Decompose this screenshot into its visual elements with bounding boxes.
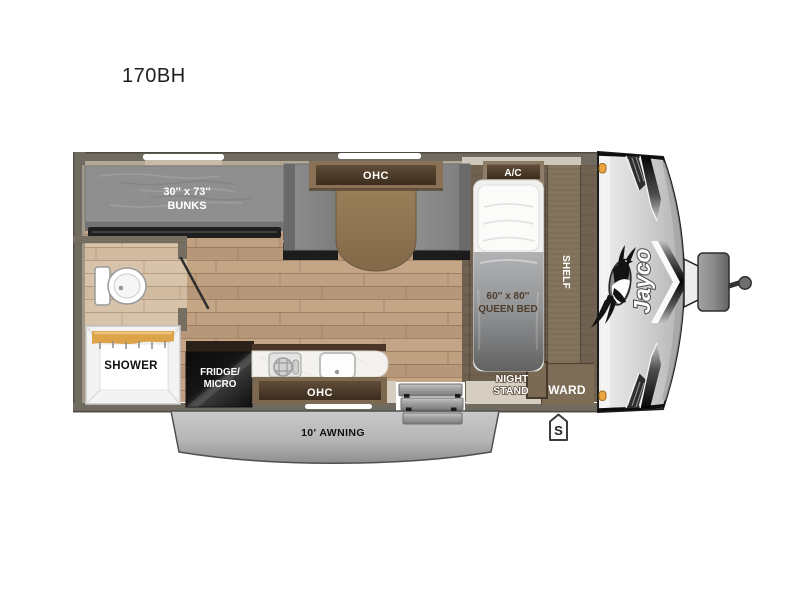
svg-text:OHC: OHC [307,387,333,399]
svg-text:Jayco: Jayco [629,248,655,313]
svg-text:MICRO: MICRO [204,379,237,390]
svg-text:STAND: STAND [493,385,529,397]
svg-text:FRIDGE/: FRIDGE/ [200,367,240,378]
svg-text:OHC: OHC [363,170,389,182]
svg-text:WARD: WARD [548,383,586,397]
svg-text:10' AWNING: 10' AWNING [301,427,365,439]
svg-text:SHELF: SHELF [560,255,571,289]
svg-text:SHOWER: SHOWER [104,360,158,372]
svg-text:30'' x 73'': 30'' x 73'' [163,186,211,198]
svg-text:S: S [554,423,563,438]
svg-text:QUEEN BED: QUEEN BED [478,304,537,315]
svg-text:A/C: A/C [504,168,521,179]
svg-text:170BH: 170BH [122,65,186,87]
svg-text:NIGHT: NIGHT [496,373,529,385]
svg-text:60'' x 80'': 60'' x 80'' [487,291,530,302]
svg-text:BUNKS: BUNKS [167,200,206,212]
